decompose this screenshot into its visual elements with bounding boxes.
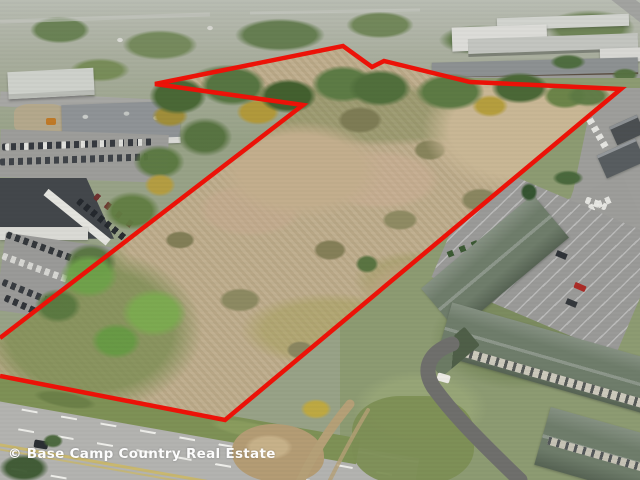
aerial-photo: © Base Camp Country Real Estate (0, 0, 640, 480)
hotel-driveway (428, 344, 520, 480)
overlay-graphics (0, 0, 640, 480)
parcel-boundary-outline (0, 46, 621, 420)
watermark-text: © Base Camp Country Real Estate (8, 446, 276, 462)
dirt-trail (300, 404, 350, 480)
